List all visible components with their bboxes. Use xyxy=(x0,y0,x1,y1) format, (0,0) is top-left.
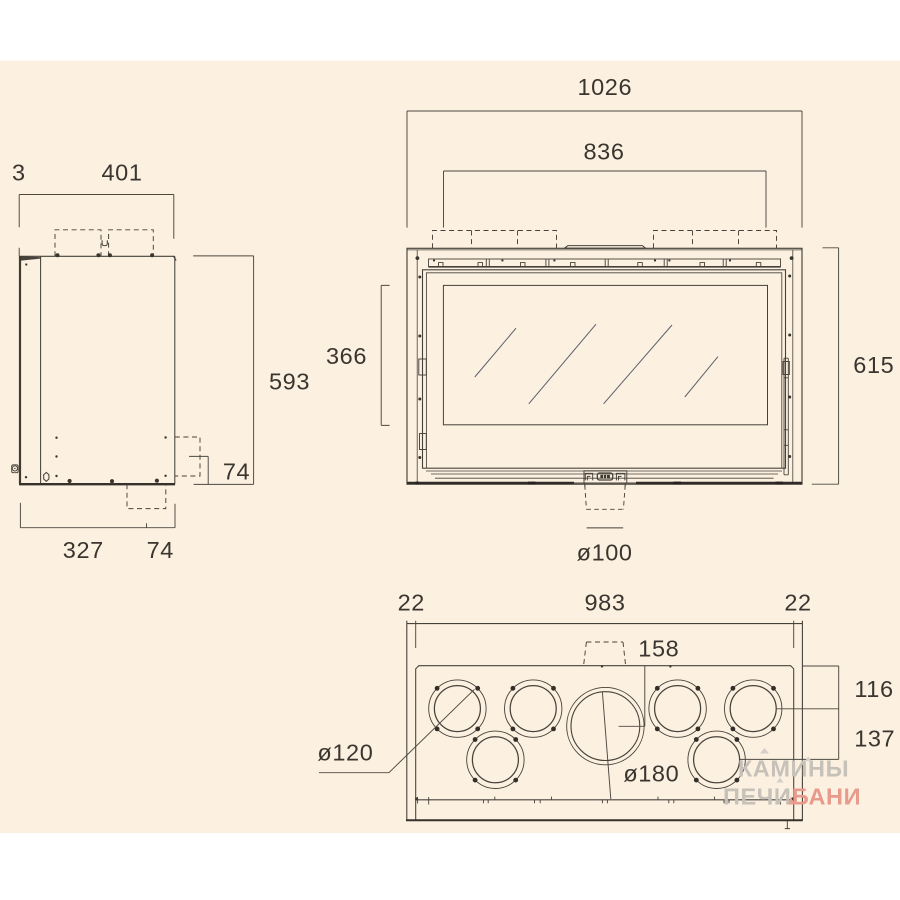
svg-text:ø100: ø100 xyxy=(577,539,633,565)
svg-text:137: 137 xyxy=(854,725,895,751)
svg-text:КАМИНЫ: КАМИНЫ xyxy=(738,756,849,782)
svg-text:836: 836 xyxy=(583,139,624,165)
svg-text:593: 593 xyxy=(269,368,310,394)
svg-text:74: 74 xyxy=(223,459,250,485)
svg-text:615: 615 xyxy=(853,352,894,378)
svg-text:БАНИ: БАНИ xyxy=(792,784,861,810)
svg-text:327: 327 xyxy=(63,537,104,563)
svg-text:983: 983 xyxy=(584,589,625,615)
svg-text:158: 158 xyxy=(638,636,679,662)
svg-text:ø120: ø120 xyxy=(317,740,373,766)
svg-text:ø180: ø180 xyxy=(623,761,679,787)
svg-text:116: 116 xyxy=(854,676,893,702)
svg-text:401: 401 xyxy=(101,159,142,185)
svg-text:74: 74 xyxy=(147,537,174,563)
svg-text:3: 3 xyxy=(12,159,26,185)
svg-text:ПЕЧИ: ПЕЧИ xyxy=(723,784,791,810)
svg-text:22: 22 xyxy=(398,589,425,615)
svg-text:22: 22 xyxy=(784,589,811,615)
svg-text:366: 366 xyxy=(326,343,367,369)
svg-text:1026: 1026 xyxy=(577,74,632,100)
